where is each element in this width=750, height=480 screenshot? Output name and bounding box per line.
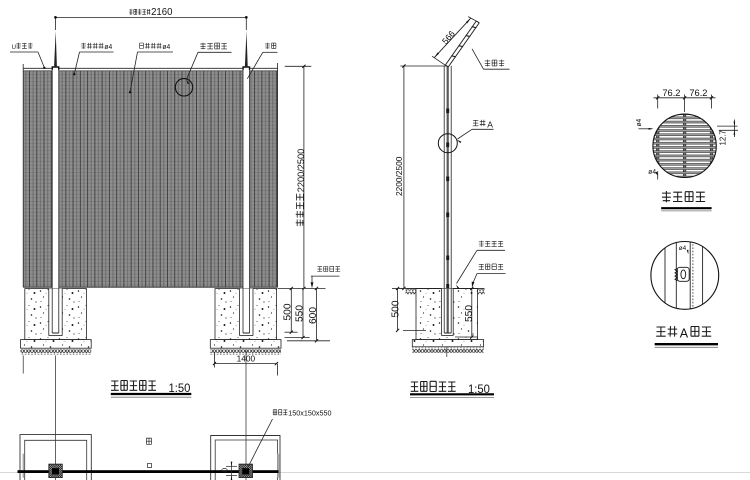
svg-text:12.7: 12.7 <box>719 130 728 146</box>
svg-text:550: 550 <box>464 305 475 322</box>
svg-text:A: A <box>487 120 493 130</box>
svg-text:600: 600 <box>308 307 319 324</box>
svg-text:2200/2500: 2200/2500 <box>394 156 404 196</box>
svg-text:ø4: ø4 <box>679 245 687 252</box>
svg-text:2200/2500: 2200/2500 <box>295 149 306 193</box>
svg-text:ø4: ø4 <box>648 169 656 176</box>
svg-text:U: U <box>12 44 16 51</box>
svg-text:566: 566 <box>440 29 457 47</box>
svg-text:76.2: 76.2 <box>689 88 707 99</box>
svg-text:ø4: ø4 <box>104 43 112 51</box>
svg-text:500: 500 <box>283 303 294 320</box>
svg-text:150x150x550: 150x150x550 <box>288 408 331 417</box>
svg-text:550: 550 <box>295 305 306 322</box>
svg-text:A: A <box>680 327 689 341</box>
svg-text:500: 500 <box>391 300 402 317</box>
svg-text:2160: 2160 <box>151 7 173 18</box>
svg-text:ø4: ø4 <box>636 119 643 127</box>
svg-text:ø4: ø4 <box>162 43 170 51</box>
svg-text:76.2: 76.2 <box>662 88 680 99</box>
